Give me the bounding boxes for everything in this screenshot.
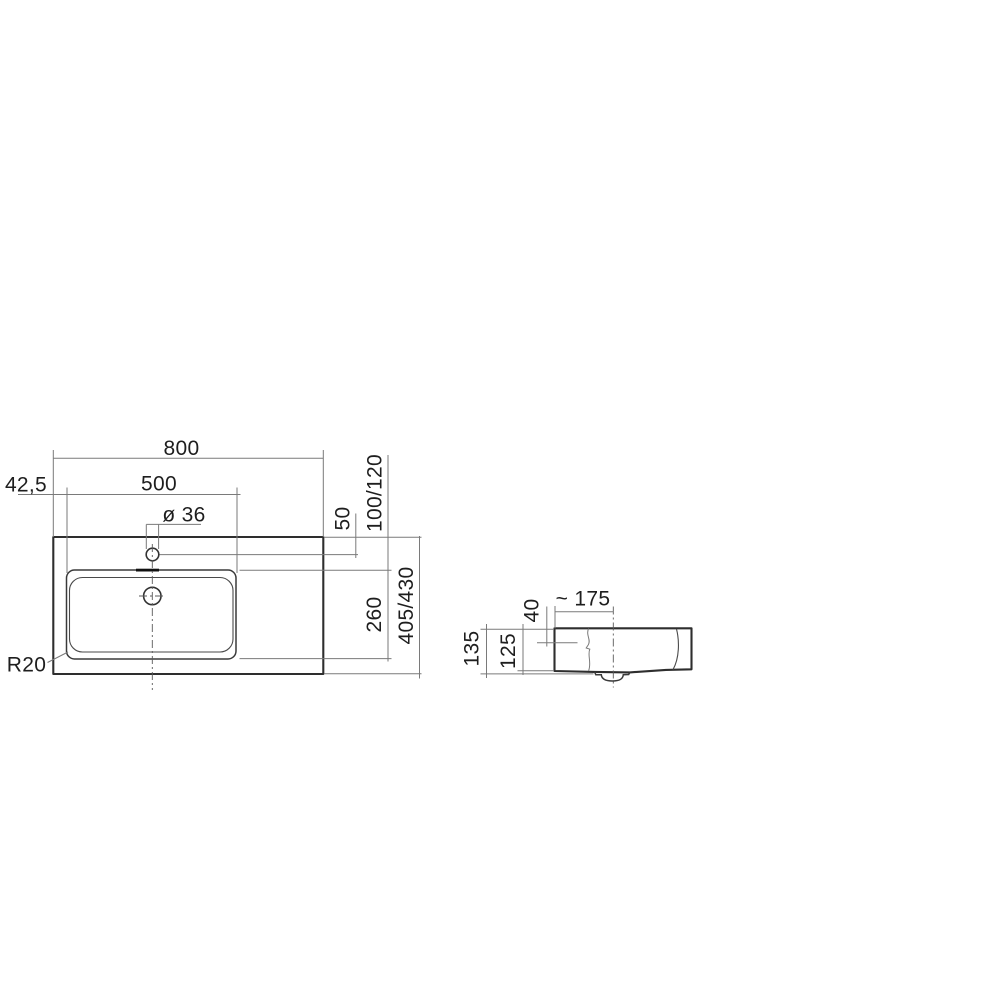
side-profile-outline (555, 628, 692, 672)
dim-label-total-width: 800 (164, 437, 200, 460)
section-break-line (586, 629, 590, 671)
dim-label-basin-depth: 260 (363, 597, 386, 633)
dim-label-body-height: 125 (497, 633, 520, 669)
dim-label-corner-radius: R20 (7, 654, 46, 677)
dim-label-tap-offset: 50 (332, 507, 355, 531)
dim-label-hole-distance: 40 (521, 599, 544, 623)
overflow-slot (136, 569, 159, 572)
dim-label-basin-width: 500 (141, 473, 177, 496)
plan-view: 800 42,5 500 ø 36 50 100/120 260 (5, 437, 422, 690)
basin-inner-contour (70, 578, 234, 653)
basin-outer-outline (67, 570, 237, 659)
dim-label-left-offset: 42,5 (5, 474, 47, 497)
dim-label-back-ledge: 100/120 (364, 454, 387, 532)
side-view: ~ 175 40 135 125 (461, 588, 692, 688)
drawing-page: 800 42,5 500 ø 36 50 100/120 260 (0, 0, 1000, 1000)
leader-line-corner-radius (48, 652, 69, 663)
front-edge-curve (673, 629, 678, 670)
dim-label-total-depth: 405/430 (395, 566, 418, 644)
dim-label-tap-diameter: ø 36 (162, 504, 205, 527)
dim-label-drain-offset: ~ 175 (556, 588, 611, 611)
worktop-outline (53, 537, 323, 674)
technical-drawing: 800 42,5 500 ø 36 50 100/120 260 (0, 0, 1000, 1000)
dim-label-total-height: 135 (461, 631, 484, 667)
